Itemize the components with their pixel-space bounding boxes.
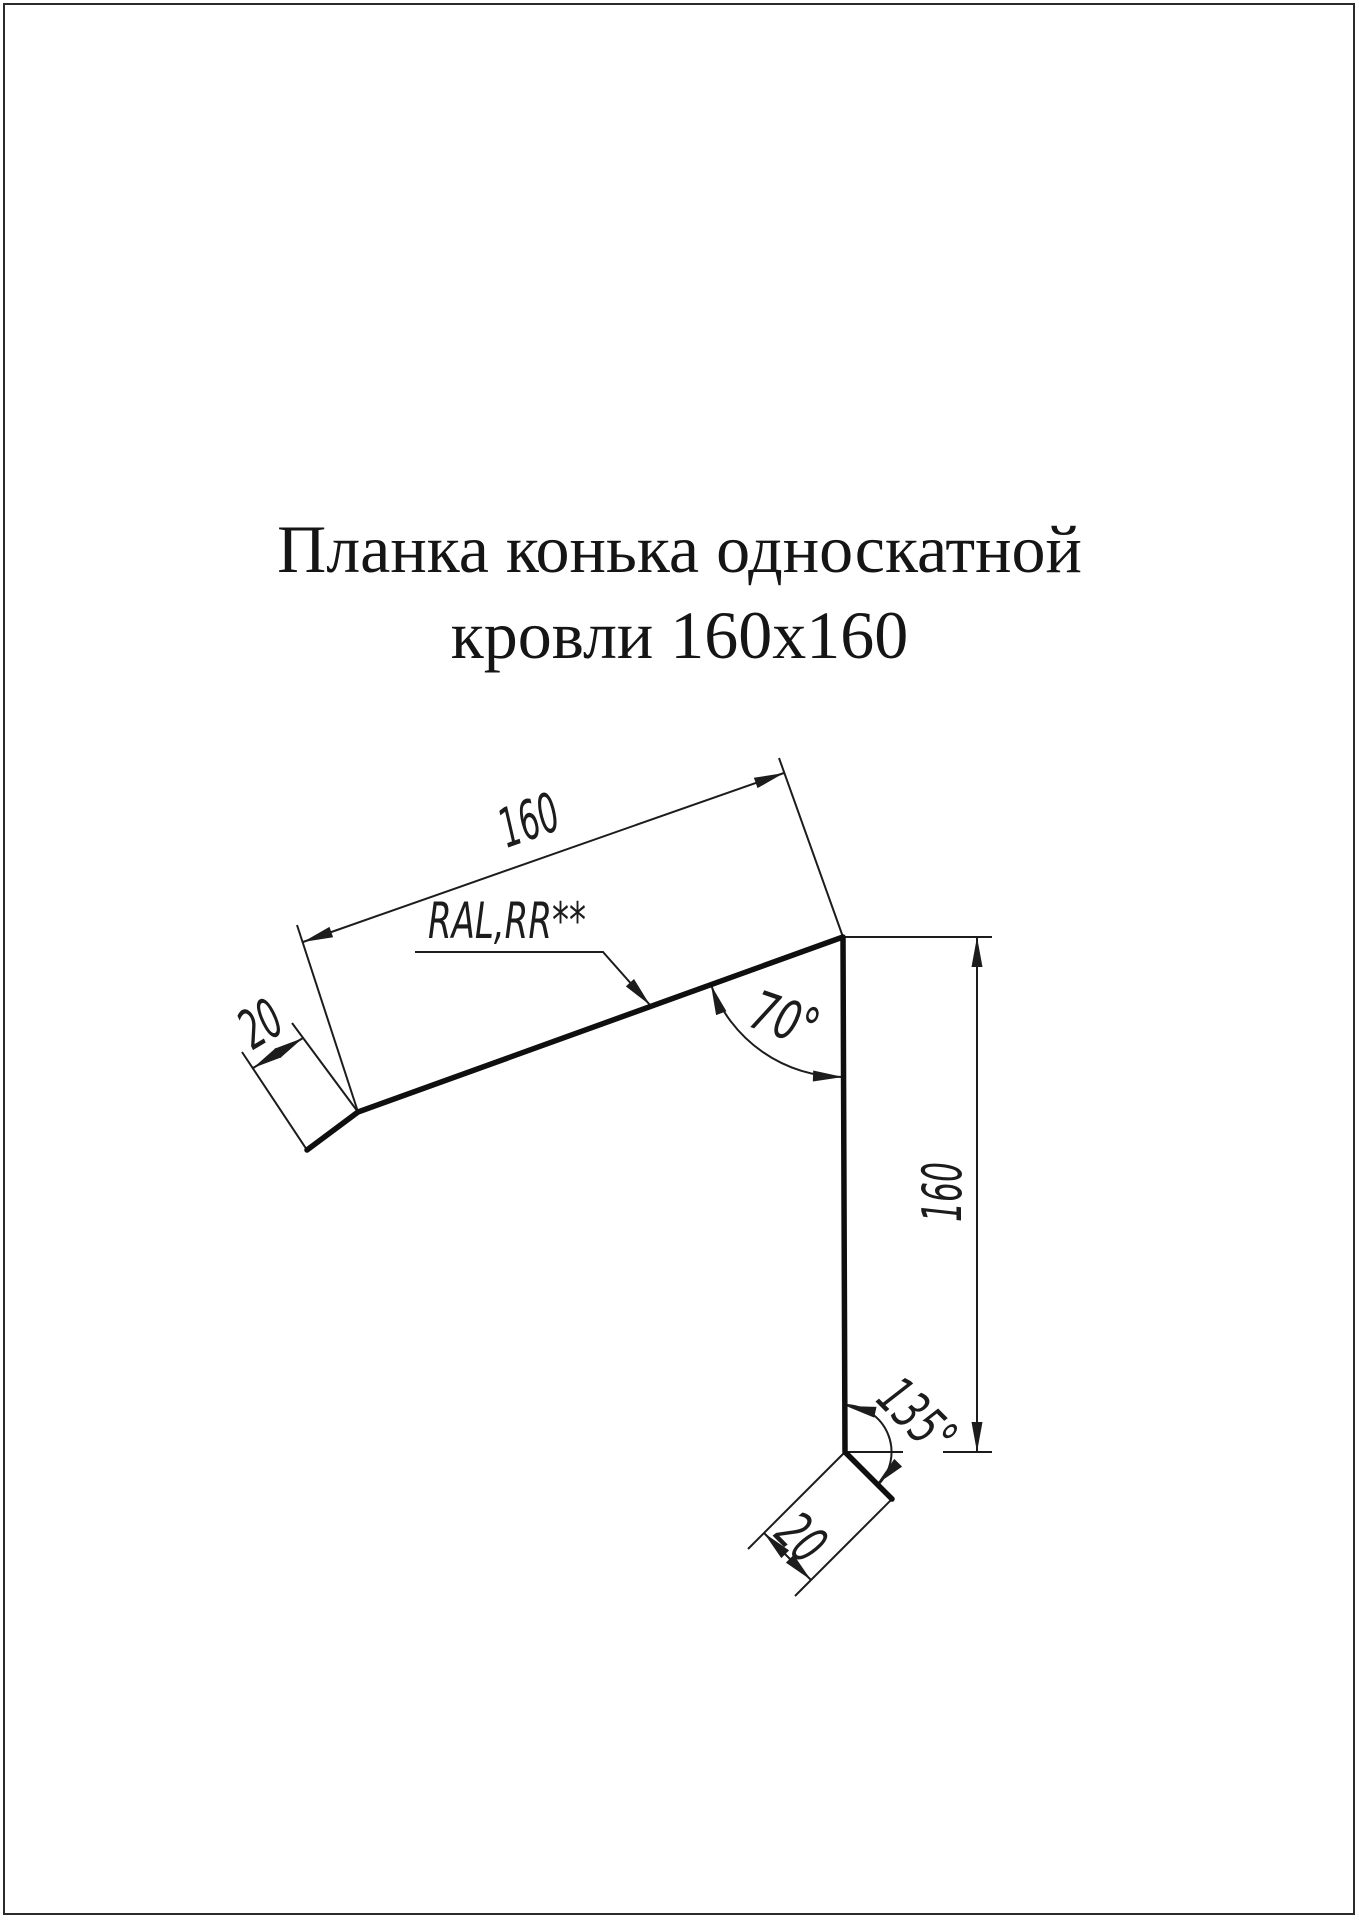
arrow-right-height-bottom	[972, 1422, 983, 1452]
arrow-top-width-right	[754, 768, 786, 788]
label-bottom-angle: 135°	[865, 1365, 969, 1469]
ext-line-top-left	[297, 925, 358, 1112]
technical-drawing: 160 RAL,RR** 20 70° 160 135° 20	[0, 0, 1359, 1920]
arrow-top-width-left	[301, 927, 333, 947]
dimension-labels: 160 RAL,RR** 20 70° 160 135° 20	[227, 781, 974, 1576]
dimension-arrowheads	[250, 768, 982, 1584]
arrow-right-height-top	[972, 937, 983, 967]
ext-line-top-right	[779, 758, 843, 937]
label-coating: RAL,RR**	[428, 892, 586, 950]
dimension-lines	[242, 758, 992, 1596]
leader-coating	[415, 952, 650, 1005]
label-right-height: 160	[911, 1162, 974, 1222]
ext-line-left-flange-bend	[292, 1023, 358, 1112]
ext-line-left-flange-tip	[242, 1052, 307, 1150]
label-apex-angle: 70°	[743, 979, 828, 1061]
label-top-width: 160	[490, 781, 568, 860]
arrow-apex-angle-vertical	[813, 1070, 843, 1082]
